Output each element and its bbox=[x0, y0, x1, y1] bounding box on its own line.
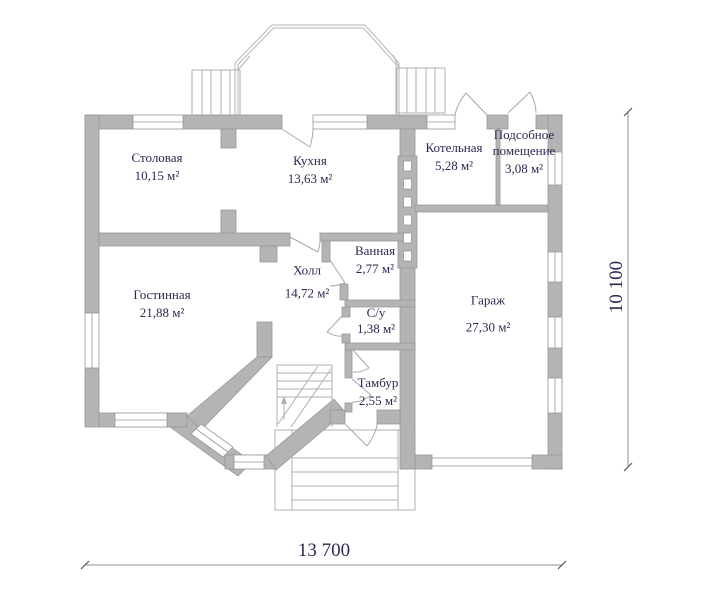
room-name: С/у bbox=[367, 305, 386, 321]
room-label-boiler: Котельная 5,28 м² bbox=[426, 140, 483, 174]
room-label-kitchen: Кухня 13,63 м² bbox=[288, 153, 333, 187]
room-label-bathroom: Ванная 2,77 м² bbox=[355, 243, 395, 277]
room-name: Кухня bbox=[293, 153, 327, 169]
room-area: 2,55 м² bbox=[359, 393, 397, 409]
room-area: 1,38 м² bbox=[357, 321, 395, 337]
room-area: 14,72 м² bbox=[285, 286, 330, 302]
room-label-tambour: Тамбур 2,55 м² bbox=[358, 375, 399, 409]
room-area: 27,30 м² bbox=[466, 320, 511, 336]
room-label-garage: Гараж 27,30 м² bbox=[466, 293, 511, 336]
room-label-living: Гостинная 21,88 м² bbox=[133, 287, 190, 321]
steps-left bbox=[192, 56, 250, 115]
room-area: 3,08 м² bbox=[505, 161, 543, 177]
room-name: Котельная bbox=[426, 140, 483, 156]
room-area: 5,28 м² bbox=[435, 158, 473, 174]
floor-plan: Столовая 10,15 м² Кухня 13,63 м² Котельн… bbox=[0, 0, 714, 600]
room-name: Столовая bbox=[131, 150, 182, 166]
room-name: Холл bbox=[293, 263, 321, 279]
room-name: Гостинная bbox=[133, 287, 190, 303]
room-area: 2,77 м² bbox=[356, 261, 394, 277]
dimension-width-label: 13 700 bbox=[286, 540, 362, 562]
dimension-height-label: 10 100 bbox=[606, 247, 628, 327]
room-label-dining: Столовая 10,15 м² bbox=[131, 150, 182, 184]
room-area: 10,15 м² bbox=[135, 168, 180, 184]
room-label-utility: Подсобное помещение 3,08 м² bbox=[487, 127, 561, 177]
room-area: 13,63 м² bbox=[288, 171, 333, 187]
room-name: Тамбур bbox=[358, 375, 399, 391]
room-label-wc: С/у 1,38 м² bbox=[357, 305, 395, 337]
room-name: Подсобное помещение bbox=[487, 127, 561, 159]
room-area: 21,88 м² bbox=[140, 305, 185, 321]
room-label-hall: Холл 14,72 м² bbox=[285, 263, 330, 302]
steps-right bbox=[393, 55, 445, 113]
room-name: Ванная bbox=[355, 243, 395, 259]
terrace-outline bbox=[235, 25, 399, 115]
room-name: Гараж bbox=[471, 293, 505, 309]
